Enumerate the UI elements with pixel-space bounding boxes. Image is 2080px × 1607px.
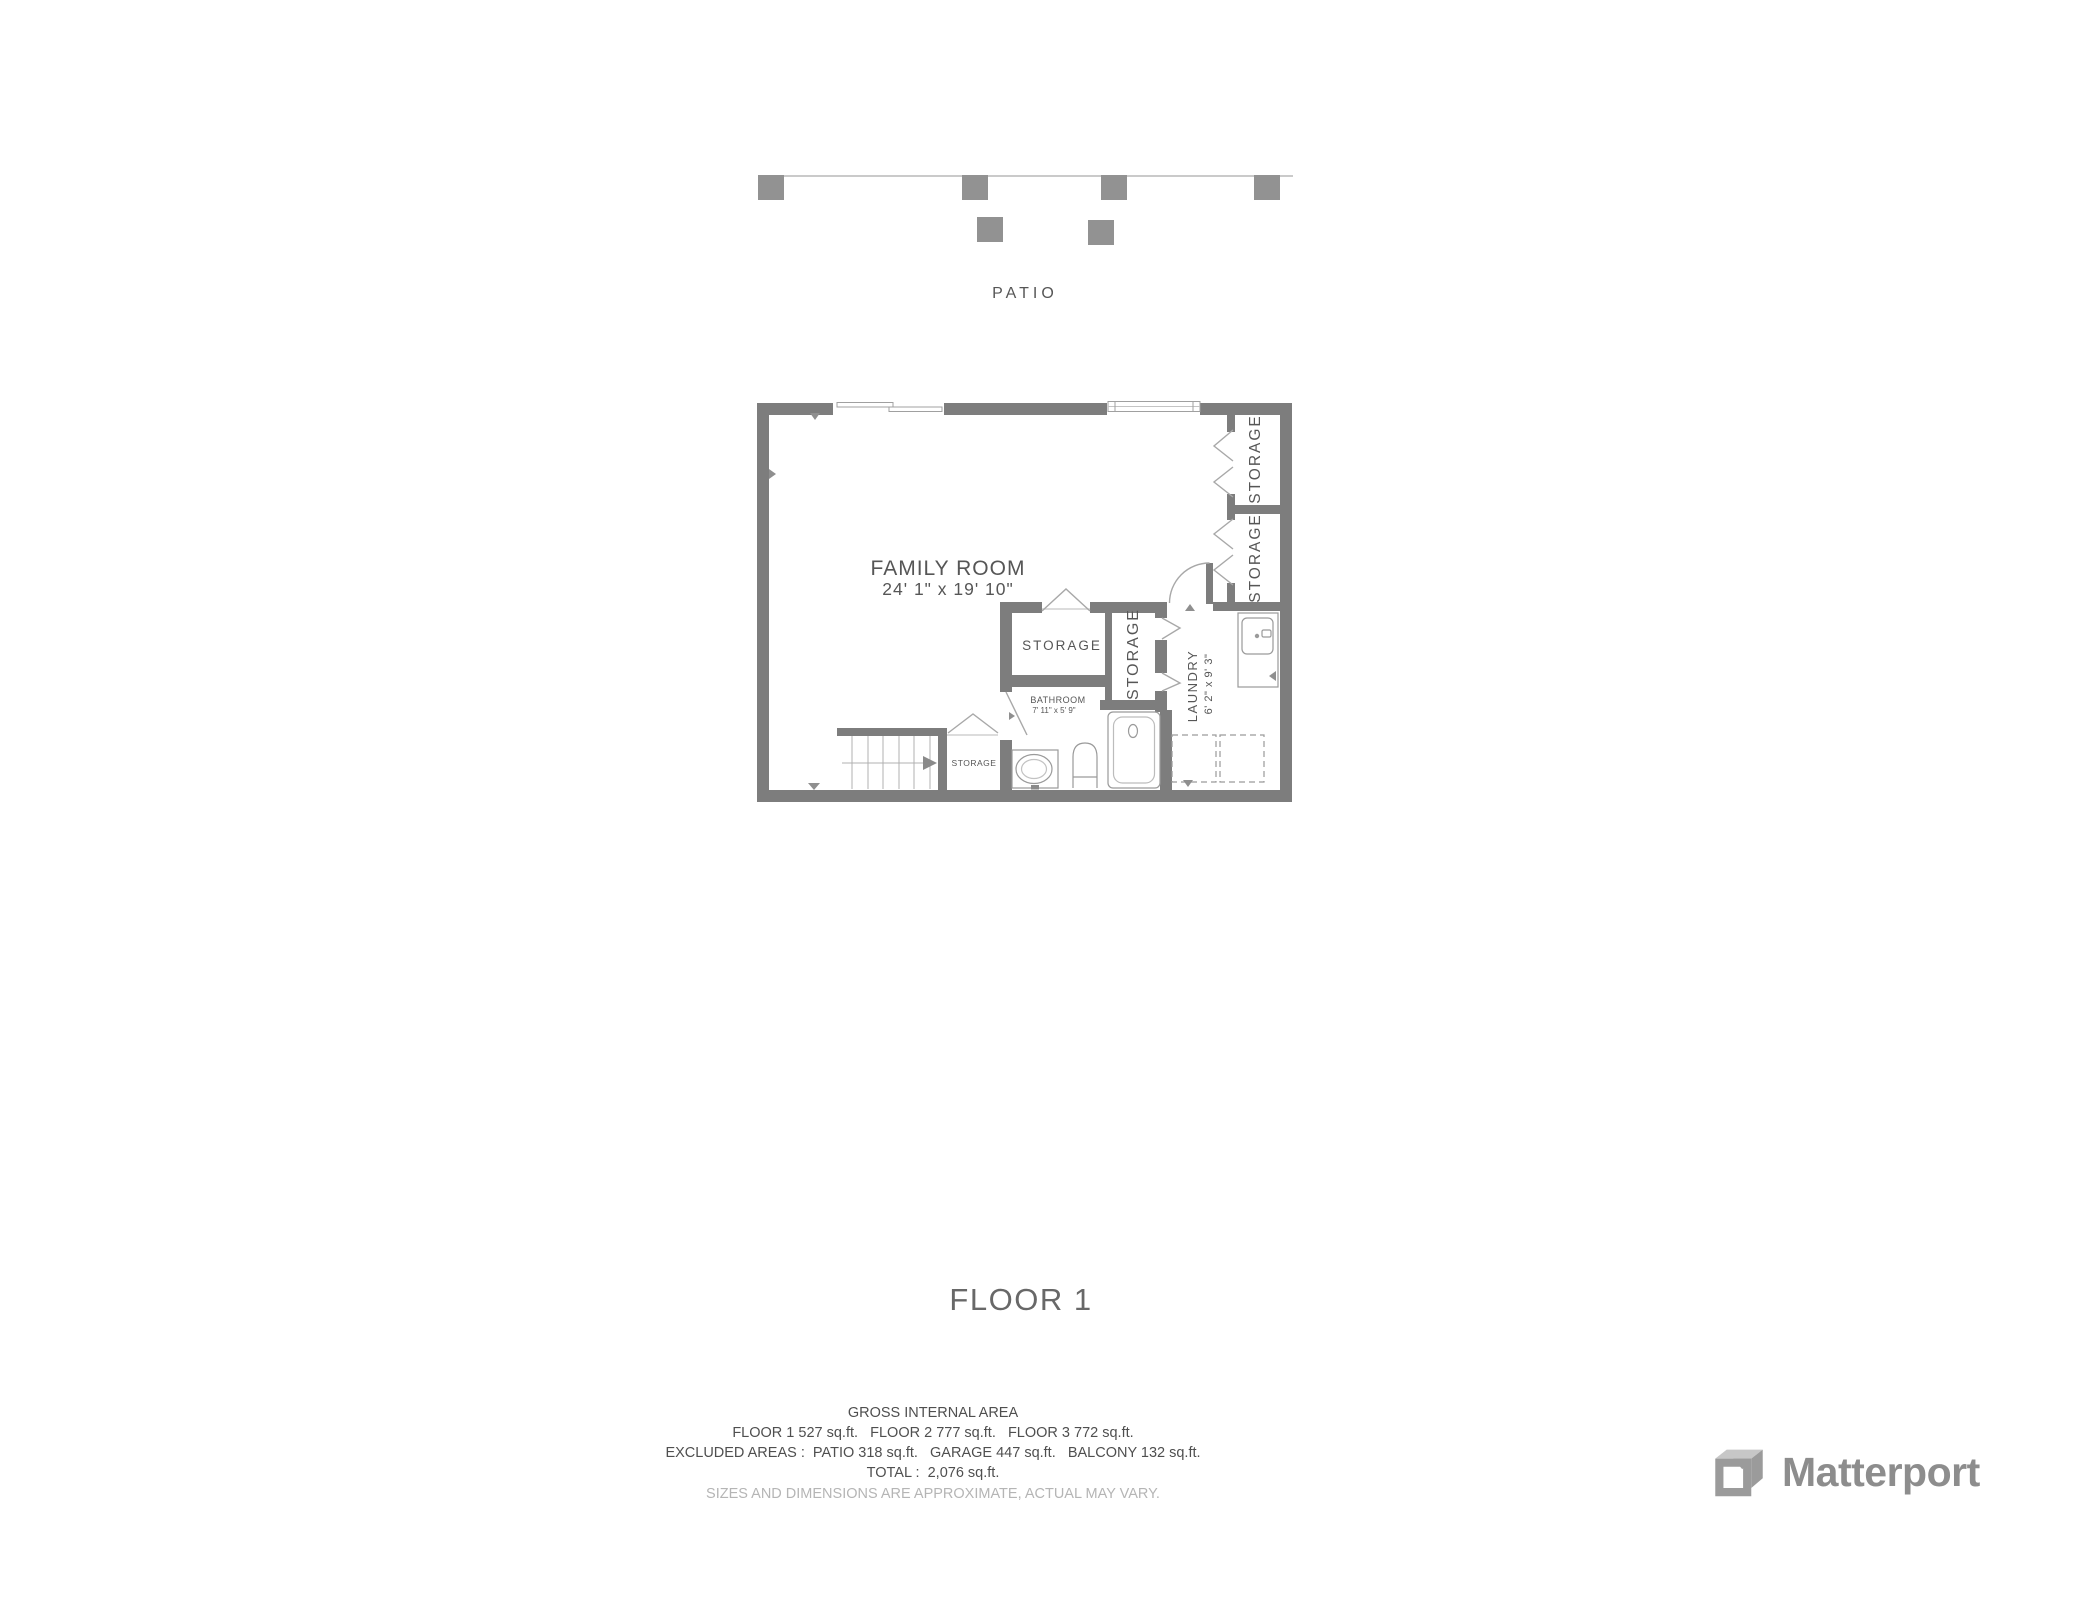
summary-floors-line: FLOOR 1 527 sq.ft. FLOOR 2 777 sq.ft. FL… [533,1423,1333,1443]
bifold-door-storage1 [1214,430,1233,461]
sink-fitting [1262,630,1271,637]
patio-post [1088,220,1114,245]
patio-post [1101,175,1127,200]
toilet [1073,743,1097,788]
matterport-logo-icon [1712,1447,1766,1498]
bifold-door-closet [1162,618,1180,639]
wall-laundry-left [1160,710,1172,790]
storage-top-right-1-label: STORAGE [1247,414,1264,504]
patio-post [977,217,1003,242]
storage-top-right-2-label: STORAGE [1247,513,1264,603]
bifold-door-storage2 [1214,555,1233,585]
bifold-door-storage1 [1214,467,1233,497]
stairs [842,736,937,789]
matterport-branding: Matterport [1712,1447,1980,1498]
marker-triangle [1009,712,1015,720]
sliding-door-panel [889,407,942,412]
wall-storage-divider [1227,505,1292,514]
summary-disclaimer: SIZES AND DIMENSIONS ARE APPROXIMATE, AC… [533,1484,1333,1504]
area-summary: GROSS INTERNAL AREA FLOOR 1 527 sq.ft. F… [533,1403,1333,1504]
dryer-outline [1220,735,1264,782]
marker-triangle [1183,780,1193,787]
shower-fitting [1031,785,1039,790]
door-leaf-hall [1206,563,1213,604]
storage-under-stairs-label: STORAGE [952,758,997,768]
shower-tray-inner [1022,760,1047,779]
door-arc-hall [1170,563,1210,603]
bathroom-label: BATHROOM [1030,695,1085,705]
wall-storage-partition [1227,415,1235,432]
storage-hall-label: STORAGE [1022,638,1102,653]
wall-top-right [1200,403,1292,415]
storage-closet-label: STORAGE [1125,608,1142,700]
matterport-wordmark: Matterport [1782,1449,1980,1496]
floor-title: FLOOR 1 [821,1282,1221,1318]
wall-closet-left [1105,602,1112,700]
bifold-door-storage2 [1214,519,1233,549]
wall-storage-partition [1227,583,1235,603]
marker-triangle [1185,604,1195,611]
summary-excluded-line: EXCLUDED AREAS : PATIO 318 sq.ft. GARAGE… [533,1443,1333,1463]
wall-stairs-top [837,728,947,736]
patio-post [962,175,988,200]
patio-structure: PATIO [758,175,1293,302]
sink-faucet [1255,634,1259,638]
bathroom-dims: 7' 11" x 5' 9" [1032,706,1075,715]
bifold-door-closet [1162,673,1180,691]
wall-top-mid [944,403,1107,415]
wall-bathroom-top [1002,675,1105,687]
bathtub-basin [1114,717,1155,783]
double-door-stairs-storage [948,714,998,733]
family-room-dims: 24' 1" x 19' 10" [882,579,1013,599]
family-room-label: FAMILY ROOM [871,557,1026,580]
wall-closet-right [1155,602,1167,618]
washer-outline [1172,735,1216,782]
floorplan-page: PATIO [0,0,2080,1607]
wall-closet-right [1155,640,1167,673]
wall-tub-alcove-top [1100,700,1165,710]
interior-walls [837,415,1292,790]
patio-post [1254,175,1280,200]
marker-triangle [808,783,820,790]
patio-post [758,175,784,200]
wall-bottom [757,790,1292,802]
wall-stairs-right [938,728,947,790]
double-door-hall-storage [1042,589,1090,611]
summary-total-line: TOTAL : 2,076 sq.ft. [533,1463,1333,1483]
sliding-door-panel [837,403,893,408]
laundry-dims: 6' 2" x 9' 3" [1203,654,1215,715]
wall-bathroom-left-lower [1000,740,1012,790]
marker-triangle [769,469,776,479]
summary-heading: GROSS INTERNAL AREA [533,1403,1333,1423]
floor-plan-drawing: PATIO [730,160,1310,820]
wall-left [757,403,769,802]
room-labels: FAMILY ROOM 24' 1" x 19' 10" STORAGE STO… [871,414,1264,768]
laundry-label: LAUNDRY [1185,650,1200,722]
marker-triangle [810,413,820,420]
patio-label: PATIO [992,285,1058,302]
